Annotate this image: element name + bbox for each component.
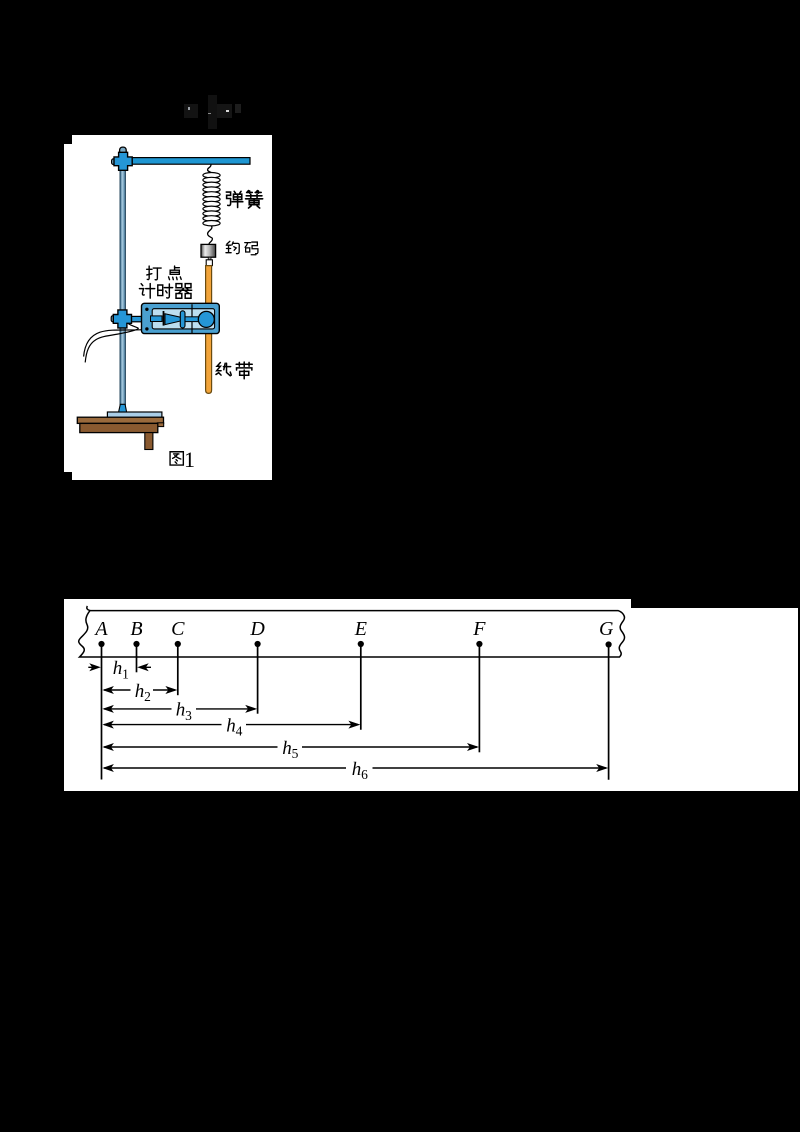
svg-text:3: 3: [185, 708, 192, 723]
svg-text:C: C: [171, 618, 185, 640]
svg-text:F: F: [472, 618, 486, 640]
svg-text:h: h: [282, 738, 292, 759]
svg-text:1: 1: [122, 666, 129, 681]
svg-text:h: h: [135, 681, 145, 702]
svg-text:h: h: [226, 715, 236, 736]
svg-text:4: 4: [236, 724, 243, 739]
svg-text:D: D: [249, 618, 265, 640]
svg-text:A: A: [93, 618, 108, 640]
svg-text:G: G: [599, 618, 614, 640]
svg-text:E: E: [354, 618, 367, 640]
svg-text:h: h: [113, 658, 123, 679]
svg-text:h: h: [176, 700, 186, 721]
svg-text:2: 2: [144, 689, 151, 704]
svg-text:B: B: [130, 618, 142, 640]
svg-text:5: 5: [292, 746, 299, 761]
svg-text:6: 6: [361, 767, 368, 782]
svg-text:1: 1: [184, 447, 195, 472]
svg-text:h: h: [352, 759, 362, 780]
